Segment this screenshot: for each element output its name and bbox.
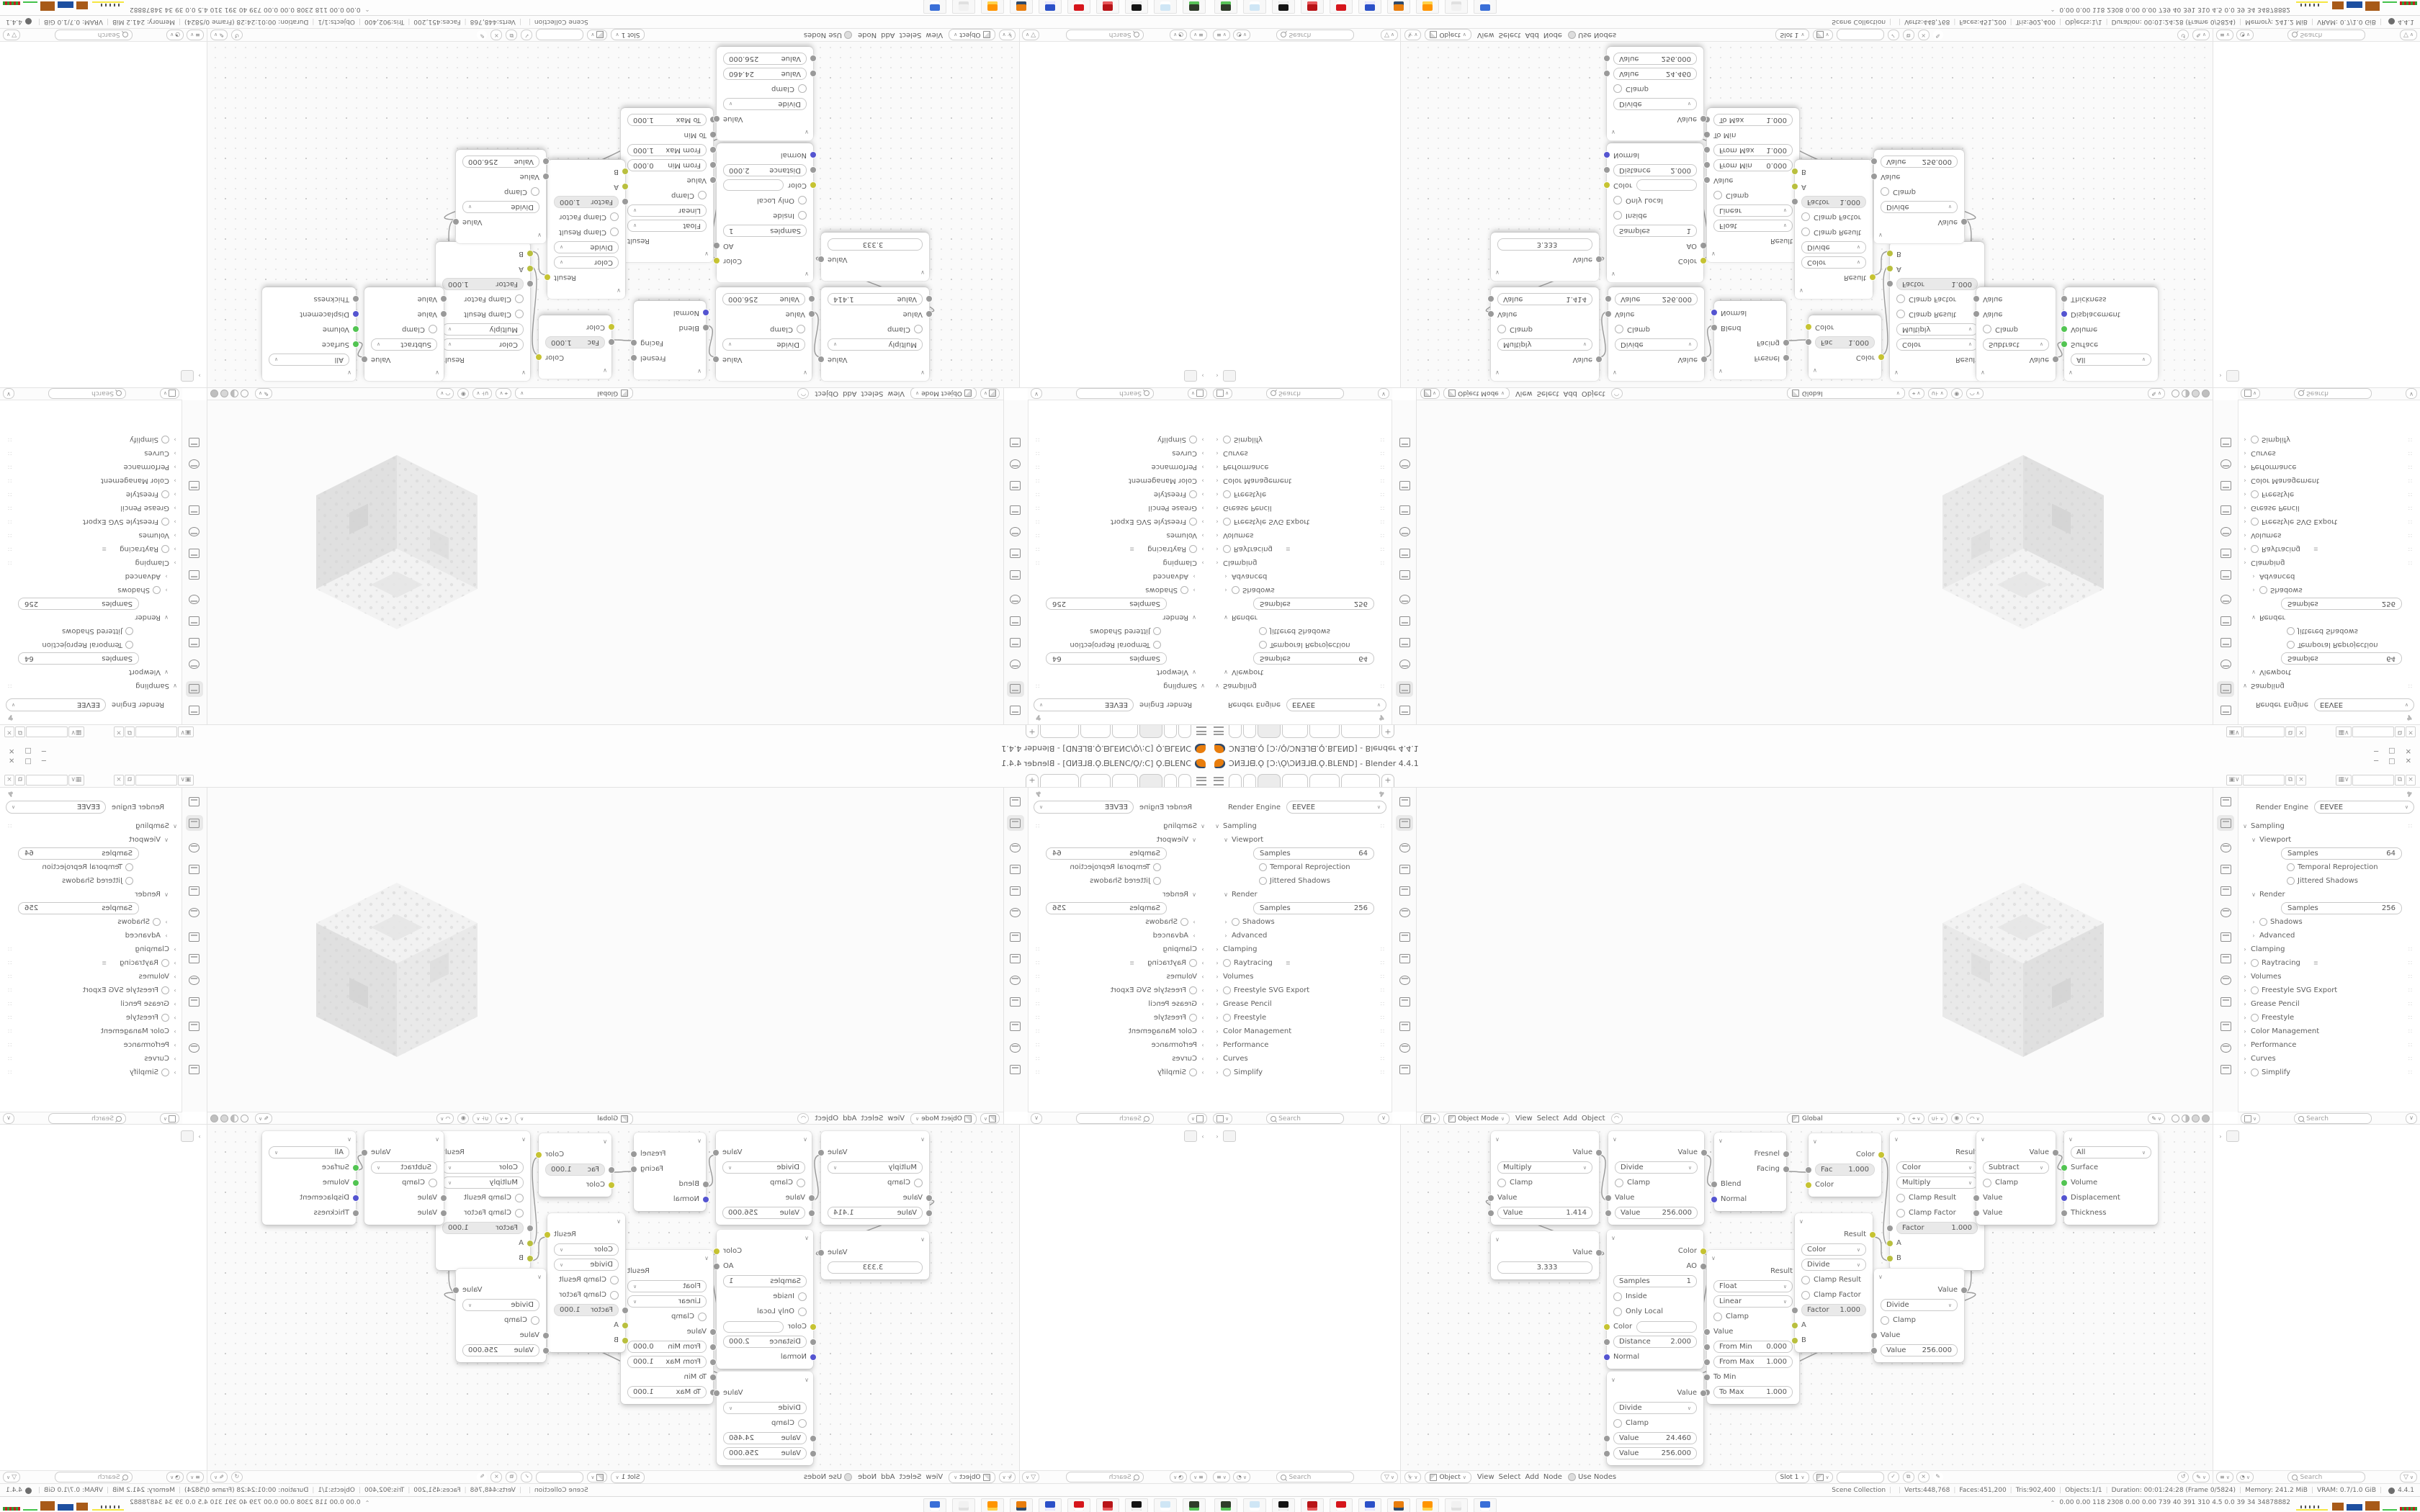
node-math-multiply[interactable]: ∨ValueMultiply∨ClampValueValue1.414 <box>821 287 929 381</box>
input-socket[interactable] <box>1604 71 1610 76</box>
property-row-clamping[interactable]: ›Clamping∷ <box>3 556 178 570</box>
node-map-range[interactable]: ∨ResultFloat∨Linear∨ClampValueFrom Min0.… <box>621 108 713 262</box>
value-field[interactable]: Samples64 <box>18 652 139 665</box>
gizmos-dropdown[interactable]: ✎∨ <box>2148 388 2165 399</box>
node-collapse-caret[interactable]: ∨ <box>821 267 929 279</box>
property-row-freestyle-svg-export[interactable]: ›Freestyle SVG Export∷ <box>3 515 178 528</box>
properties-tab-world-icon[interactable] <box>186 904 203 920</box>
output-socket[interactable] <box>713 1150 719 1156</box>
property-row-simplify[interactable]: ›Simplify∷ <box>1031 1066 1206 1079</box>
collapsed-item[interactable]: › <box>181 1130 202 1142</box>
transform-pivot-icon[interactable]: ◠ <box>1611 1113 1623 1124</box>
material-name-field[interactable] <box>536 1472 583 1483</box>
checkbox-icon[interactable] <box>1896 1194 1905 1202</box>
value-field[interactable]: Value24.460 <box>1613 1432 1697 1444</box>
properties-tab-strip[interactable] <box>1391 400 1417 724</box>
input-socket[interactable] <box>527 281 533 287</box>
input-socket[interactable] <box>810 1324 816 1330</box>
properties-tab-physics-icon[interactable] <box>186 994 203 1009</box>
value-field[interactable]: Value256.000 <box>462 156 539 168</box>
select-dropdown[interactable]: Multiply∨ <box>442 1176 524 1189</box>
input-socket[interactable] <box>810 152 816 158</box>
checkbox-icon[interactable] <box>798 1292 807 1301</box>
input-socket[interactable] <box>622 1338 628 1344</box>
property-row-performance[interactable]: ›Performance∷ <box>1214 1038 1389 1052</box>
select-dropdown[interactable]: Multiply∨ <box>828 1161 923 1174</box>
workspace-tab-4[interactable] <box>1309 724 1340 738</box>
node-collapse-caret[interactable]: ∨ <box>1795 1215 1873 1227</box>
properties-tab-particles-icon[interactable] <box>2217 972 2234 988</box>
property-row-advanced[interactable]: ›Advanced <box>3 929 169 942</box>
collapsed-item[interactable]: › <box>1214 370 1236 382</box>
select-dropdown[interactable]: All∨ <box>269 1146 349 1158</box>
checkbox-icon[interactable] <box>125 627 133 635</box>
node-value[interactable]: ∨Value3.333 <box>1491 1231 1599 1279</box>
taskbar-ghost-app-icon[interactable] <box>1445 1498 1468 1512</box>
value-field[interactable]: From Min0.000 <box>1713 1341 1793 1353</box>
close-icon[interactable]: × <box>114 775 124 786</box>
value-field[interactable]: Value256.000 <box>723 1447 807 1459</box>
options-dropdown[interactable]: ∨ <box>1378 388 1389 399</box>
properties-tab-strip[interactable] <box>1391 788 1417 1112</box>
properties-tab-particles-icon[interactable] <box>186 972 203 988</box>
value-field[interactable]: From Max1.000 <box>1713 1356 1793 1368</box>
input-socket[interactable] <box>1973 1195 1979 1201</box>
properties-tab-scene-icon[interactable] <box>1007 613 1024 629</box>
value-field[interactable]: Value24.460 <box>723 68 807 80</box>
node-math-divide-a[interactable]: ∨ValueDivide∨ClampValueValue256.000 <box>716 287 812 381</box>
collapsed-item[interactable]: › <box>2218 370 2239 382</box>
filter-dropdown[interactable]: ▽∨ <box>2400 1472 2417 1482</box>
property-row-freestyle-svg-export[interactable]: ›Freestyle SVG Export∷ <box>1031 515 1206 528</box>
property-row-grease-pencil[interactable]: ›Grease Pencil∷ <box>1031 501 1206 515</box>
properties-tab-object-icon[interactable] <box>186 567 203 583</box>
title-bar[interactable]: ƆИƎ⅃ᗺ.Ǫ [Ɔ:\Ǫ\ƆИƎ⅃ᗺ.Ǫ.BLEND] - Blender 4… <box>1210 740 2420 756</box>
workspace-tab-2[interactable] <box>1139 724 1162 738</box>
caption-buttons[interactable]: ─ □ ✕ <box>2374 757 2411 765</box>
duplicate-icon[interactable]: ⧉ <box>15 726 25 737</box>
material-name-field[interactable] <box>1837 1472 1884 1483</box>
property-row-samples[interactable]: Samples64 <box>3 652 139 665</box>
node-math-divide-a[interactable]: ∨ValueDivide∨ClampValueValue256.000 <box>716 1131 812 1225</box>
properties-tab-material-icon[interactable] <box>186 1061 203 1077</box>
input-socket[interactable] <box>1871 1333 1877 1338</box>
collapsed-item[interactable]: › <box>1184 370 1206 382</box>
wireframe-shading-icon[interactable] <box>2172 390 2179 397</box>
taskbar-notepad-app-icon[interactable] <box>1243 1498 1266 1512</box>
node-collapse-caret[interactable]: ∨ <box>1607 269 1703 280</box>
value-field[interactable]: Value256.000 <box>1613 53 1697 65</box>
property-row-advanced[interactable]: ›Advanced <box>1223 929 1389 942</box>
duplicate-icon[interactable]: ⧉ <box>2395 775 2405 786</box>
property-row-curves[interactable]: ›Curves∷ <box>1214 446 1389 460</box>
taskbar-hex-editor-app-icon[interactable] <box>1039 1498 1062 1512</box>
output-socket[interactable] <box>362 1150 367 1156</box>
node-map-range[interactable]: ∨ResultFloat∨Linear∨ClampValueFrom Min0.… <box>1707 108 1799 262</box>
properties-tab-data-icon[interactable] <box>2217 456 2234 472</box>
node-mix-color-divide[interactable]: ∨ResultColor∨Divide∨Clamp ResultClamp Fa… <box>1795 160 1873 299</box>
properties-tab-render-icon[interactable] <box>1396 681 1413 697</box>
property-row-freestyle[interactable]: ›Freestyle∷ <box>2242 487 2417 501</box>
node-collapse-caret[interactable]: ∨ <box>1491 1233 1599 1245</box>
gizmos-dropdown[interactable]: ✎∨ <box>255 388 272 399</box>
input-socket[interactable] <box>1604 1354 1610 1360</box>
output-socket[interactable] <box>1596 1250 1602 1256</box>
output-socket[interactable] <box>631 340 637 346</box>
taskbar-firefox-app-icon[interactable] <box>1416 1498 1439 1512</box>
property-row-curves[interactable]: ›Curves∷ <box>3 1052 178 1066</box>
node-canvas[interactable]: ∨ValueMultiply∨ClampValueValue1.414∨Valu… <box>207 1125 1019 1470</box>
taskbar-red-gear-app-icon[interactable] <box>1067 1498 1090 1512</box>
node-collapse-caret[interactable]: ∨ <box>1809 365 1881 377</box>
property-row-shadows[interactable]: ›Shadows <box>1223 583 1389 597</box>
checkbox-icon[interactable] <box>2287 877 2295 885</box>
output-socket[interactable] <box>631 1166 637 1172</box>
properties-tab-object-icon[interactable] <box>186 929 203 945</box>
select-dropdown[interactable]: Divide∨ <box>1615 338 1698 351</box>
filter-mode-dropdown[interactable]: ◔∨ <box>2236 30 2254 40</box>
properties-tab-physics-icon[interactable] <box>1396 503 1413 518</box>
output-socket[interactable] <box>1878 354 1884 360</box>
duplicate-icon[interactable]: ⧉ <box>125 726 135 737</box>
menu-select[interactable]: Select <box>1497 31 1523 39</box>
workspace-tab-0[interactable] <box>1178 774 1191 788</box>
maximize-icon[interactable]: □ <box>24 747 31 755</box>
viewlayer-name-field[interactable] <box>2352 775 2394 786</box>
property-row-performance[interactable]: ›Performance∷ <box>2242 1038 2417 1052</box>
node-collapse-caret[interactable]: ∨ <box>821 367 929 379</box>
properties-tab-physics-icon[interactable] <box>186 503 203 518</box>
search-input[interactable]: Search <box>1266 1113 1344 1124</box>
menu-view[interactable]: View <box>885 390 907 397</box>
menu-hamburger-icon[interactable] <box>1214 777 1224 786</box>
value-field[interactable]: Value1.414 <box>1497 293 1592 305</box>
node-collapse-caret[interactable]: ∨ <box>717 1374 813 1385</box>
properties-tab-world-icon[interactable] <box>186 592 203 608</box>
snap-target-dropdown[interactable]: ⌖∨ <box>1909 1113 1924 1124</box>
property-row-jittered-shadows[interactable]: Jittered Shadows <box>2287 874 2417 888</box>
display-mode-dropdown[interactable]: ≡∨ <box>2216 1472 2233 1482</box>
node-collapse-caret[interactable]: ∨ <box>1491 267 1599 279</box>
checkbox-icon[interactable] <box>1223 490 1231 498</box>
input-socket[interactable] <box>1806 324 1811 330</box>
input-socket[interactable] <box>703 310 709 315</box>
property-row-curves[interactable]: ›Curves∷ <box>2242 1052 2417 1066</box>
properties-tab-material-icon[interactable] <box>1396 1061 1413 1077</box>
menu-view[interactable]: View <box>1475 1473 1497 1481</box>
property-row-sampling[interactable]: ∨Sampling∷ <box>3 819 178 833</box>
taskbar-notepad-app-icon[interactable] <box>1243 0 1266 14</box>
output-socket[interactable] <box>1878 1152 1884 1158</box>
workspace-tab-3[interactable] <box>1112 774 1138 788</box>
value-field[interactable]: 3.333 <box>1497 238 1592 251</box>
properties-tab-tool-icon[interactable] <box>2217 793 2234 809</box>
property-row-viewport[interactable]: ∨Viewport <box>1031 833 1197 847</box>
input-socket[interactable] <box>609 1167 614 1173</box>
property-row-samples[interactable]: Samples256 <box>1031 901 1167 915</box>
checkbox-icon[interactable] <box>2287 627 2295 635</box>
render-engine-dropdown[interactable]: EEVEE∨ <box>6 801 106 814</box>
property-row-viewport[interactable]: ∨Viewport <box>1223 665 1389 679</box>
search-input[interactable]: Search <box>1276 1472 1354 1482</box>
properties-tab-strip[interactable] <box>181 400 207 724</box>
taskbar-icons[interactable] <box>1214 0 1497 14</box>
select-dropdown[interactable]: Divide∨ <box>722 338 805 351</box>
checkbox-icon[interactable] <box>153 918 161 926</box>
properties-tab-data-icon[interactable] <box>2217 1040 2234 1056</box>
taskbar-console-app-icon[interactable] <box>1214 1498 1237 1512</box>
snapping-toggle[interactable]: ↺ <box>2177 1472 2189 1482</box>
overlays-dropdown[interactable]: ✎∨ <box>210 30 228 40</box>
filter-dropdown[interactable]: ▽∨ <box>2400 30 2417 40</box>
workspace-tabs[interactable]: + <box>1026 774 1191 788</box>
property-row-sampling[interactable]: ∨Sampling∷ <box>1214 819 1389 833</box>
node-layer-weight[interactable]: ∨FresnelFacingBlendNormal <box>634 301 706 379</box>
search-input[interactable]: Search <box>1076 388 1154 399</box>
menu-hamburger-icon[interactable] <box>1214 726 1224 735</box>
input-socket[interactable] <box>1604 1451 1610 1457</box>
property-row-sampling[interactable]: ∨Sampling∷ <box>1031 679 1206 693</box>
filter-dropdown[interactable]: ▽∨ <box>3 1472 20 1482</box>
overlays-dropdown[interactable]: ◠∨ <box>1966 388 1984 399</box>
output-socket[interactable] <box>1700 1248 1706 1254</box>
properties-tab-output-icon[interactable] <box>2217 657 2234 672</box>
output-socket[interactable] <box>631 355 637 361</box>
value-field[interactable]: Value256.000 <box>1613 1447 1697 1459</box>
workspace-tab-3[interactable] <box>1282 724 1308 738</box>
select-dropdown[interactable]: Divide∨ <box>462 201 539 213</box>
checkbox-icon[interactable] <box>1180 586 1188 594</box>
checkbox-icon[interactable] <box>515 1194 524 1202</box>
select-dropdown[interactable]: Color∨ <box>442 1161 524 1174</box>
properties-tab-world-icon[interactable] <box>1007 904 1024 920</box>
property-row-volumes[interactable]: ›Volumes∷ <box>1214 970 1389 984</box>
node-collapse-caret[interactable]: ∨ <box>621 1252 713 1264</box>
maximize-icon[interactable]: □ <box>24 757 31 765</box>
checkbox-icon[interactable] <box>125 877 133 885</box>
snapping-toggle[interactable]: ↺ <box>231 1472 243 1482</box>
checkbox-icon[interactable] <box>1153 627 1161 635</box>
property-row-freestyle-svg-export[interactable]: ›Freestyle SVG Export∷ <box>1214 515 1389 528</box>
select-dropdown[interactable]: Divide∨ <box>723 1402 807 1414</box>
node-mix-color-multiply[interactable]: ∨ResultColor∨Multiply∨Clamp ResultClamp … <box>436 1131 530 1270</box>
node-math-subtract[interactable]: ∨ValueSubtract∨ClampValueValue <box>364 1131 444 1225</box>
input-socket[interactable] <box>543 1348 549 1354</box>
workspace-tab-2[interactable] <box>1258 724 1281 738</box>
viewport-canvas[interactable] <box>207 400 1003 724</box>
properties-tab-modifier-icon[interactable] <box>1007 950 1024 966</box>
use-nodes-checkbox[interactable]: Use Nodes <box>804 31 852 39</box>
select-dropdown[interactable]: Multiply∨ <box>1896 323 1978 336</box>
property-row-shadows[interactable]: ›Shadows <box>1223 915 1389 929</box>
value-field[interactable]: Samples256 <box>1253 902 1374 914</box>
value-field[interactable]: Samples64 <box>2281 847 2402 860</box>
input-socket[interactable] <box>527 266 533 271</box>
material-name-field[interactable] <box>1837 30 1884 41</box>
snap-target-dropdown[interactable]: ⌖∨ <box>1909 388 1924 399</box>
pin-icon[interactable] <box>1379 792 1385 798</box>
orientation-dropdown[interactable]: Global∨ <box>1787 1113 1905 1125</box>
node-collapse-caret[interactable]: ∨ <box>262 367 356 379</box>
properties-tab-constraints-icon[interactable] <box>186 1018 203 1034</box>
input-socket[interactable] <box>1704 162 1710 168</box>
checkbox-icon[interactable] <box>153 586 161 594</box>
editor-type-button[interactable]: ∨ <box>2241 388 2260 399</box>
property-row-freestyle-svg-export[interactable]: ›Freestyle SVG Export∷ <box>1031 984 1206 997</box>
checkbox-icon[interactable] <box>1223 518 1231 526</box>
input-socket[interactable] <box>810 1451 816 1457</box>
filter-mode-dropdown[interactable]: ◔∨ <box>1233 1472 1250 1482</box>
viewlayer-icon[interactable]: ▦∨ <box>68 726 84 737</box>
material-slot-dropdown[interactable]: Slot 1∨ <box>611 1472 645 1483</box>
input-socket[interactable] <box>809 1195 815 1201</box>
value-field[interactable]: Distance2.000 <box>723 1336 807 1348</box>
snap-target-dropdown[interactable]: ⌖∨ <box>496 1113 511 1124</box>
input-socket[interactable] <box>543 174 549 179</box>
input-socket[interactable] <box>1792 1308 1798 1313</box>
property-row-performance[interactable]: ›Performance∷ <box>3 460 178 474</box>
output-socket[interactable] <box>1961 1287 1967 1293</box>
unlink-material-button[interactable]: × <box>490 30 502 40</box>
properties-tab-strip[interactable] <box>181 788 207 1112</box>
properties-tab-physics-icon[interactable] <box>2217 503 2234 518</box>
checkbox-icon[interactable] <box>797 1179 805 1187</box>
checkbox-icon[interactable] <box>1615 1179 1623 1187</box>
editor-type-button[interactable]: ∨ <box>1188 1113 1207 1124</box>
property-row-temporal-reprojection[interactable]: Temporal Reprojection <box>1259 638 1389 652</box>
use-nodes-checkbox[interactable]: Use Nodes <box>1568 31 1616 39</box>
taskbar-remote-desktop-app-icon[interactable] <box>1474 1498 1497 1512</box>
shading-mode-buttons[interactable] <box>2172 1115 2210 1122</box>
input-socket[interactable] <box>1806 1182 1811 1188</box>
properties-tab-material-icon[interactable] <box>2217 1061 2234 1077</box>
input-socket[interactable] <box>2061 296 2067 302</box>
properties-tab-modifier-icon[interactable] <box>186 546 203 562</box>
output-socket[interactable] <box>2053 356 2058 362</box>
properties-tab-data-icon[interactable] <box>1396 1040 1413 1056</box>
workspace-tab-0[interactable] <box>1178 724 1191 738</box>
close-icon[interactable]: × <box>4 775 14 786</box>
menger-cube-object[interactable] <box>1930 874 2117 1090</box>
output-socket[interactable] <box>1700 258 1706 264</box>
input-socket[interactable] <box>353 296 359 302</box>
properties-tab-output-icon[interactable] <box>186 840 203 855</box>
node-collapse-caret[interactable]: ∨ <box>634 366 706 377</box>
properties-tab-scene-icon[interactable] <box>2217 613 2234 629</box>
color-swatch[interactable] <box>723 180 784 192</box>
search-input[interactable]: Search <box>1076 1113 1154 1124</box>
checkbox-icon[interactable] <box>1983 1179 1991 1187</box>
scene-selector[interactable]: ▣∨ ⧉ × <box>2226 726 2306 737</box>
properties-tab-modifier-icon[interactable] <box>1396 950 1413 966</box>
value-field[interactable]: 3.333 <box>828 238 923 251</box>
input-socket[interactable] <box>1488 311 1494 317</box>
input-socket[interactable] <box>703 1197 709 1202</box>
menu-view[interactable]: View <box>1513 390 1535 397</box>
node-collapse-caret[interactable]: ∨ <box>1976 367 2056 379</box>
editor-type-button[interactable]: ∨ <box>1420 388 1440 399</box>
property-row-shadows[interactable]: ›Shadows <box>3 915 169 929</box>
title-bar[interactable]: ƆИƎ⅃ᗺ.Ǫ [Ɔ:\Ǫ\ƆИƎ⅃ᗺ.Ǫ.BLEND] - Blender 4… <box>0 756 1210 772</box>
properties-tab-render-icon[interactable] <box>186 681 203 697</box>
pin-icon[interactable] <box>1379 714 1385 720</box>
property-row-sampling[interactable]: ∨Sampling∷ <box>2242 679 2417 693</box>
filter-mode-dropdown[interactable]: ◔∨ <box>1170 30 1187 40</box>
checkbox-icon[interactable] <box>1801 228 1810 237</box>
checkbox-icon[interactable] <box>1189 490 1197 498</box>
taskbar-red-circle-app-icon[interactable] <box>1096 1498 1119 1512</box>
value-field[interactable]: Value256.000 <box>722 1207 805 1219</box>
menu-node[interactable]: Node <box>1541 1473 1564 1481</box>
property-row-raytracing[interactable]: ›Raytracing≣∷ <box>3 542 178 556</box>
menu-hamburger-icon[interactable] <box>1196 777 1206 786</box>
properties-tab-world-icon[interactable] <box>2217 592 2234 608</box>
output-socket[interactable] <box>544 274 550 280</box>
input-socket[interactable] <box>441 311 447 317</box>
property-row-performance[interactable]: ›Performance∷ <box>1031 460 1206 474</box>
viewlayer-name-field[interactable] <box>26 775 68 786</box>
display-mode-dropdown[interactable]: ≡∨ <box>1190 1472 1207 1482</box>
rendered-shading-icon[interactable] <box>210 1115 218 1122</box>
filter-dropdown[interactable]: ▽∨ <box>1381 1472 1398 1482</box>
property-row-clamping[interactable]: ›Clamping∷ <box>2242 556 2417 570</box>
property-row-samples[interactable]: Samples256 <box>2281 597 2417 611</box>
select-dropdown[interactable]: Color∨ <box>554 256 619 269</box>
output-socket[interactable] <box>1783 355 1789 361</box>
input-socket[interactable] <box>1704 1359 1710 1365</box>
property-row-grease-pencil[interactable]: ›Grease Pencil∷ <box>1031 997 1206 1011</box>
options-dropdown[interactable]: ∨ <box>2406 388 2417 399</box>
proportional-edit-toggle[interactable]: ◉ <box>457 388 469 399</box>
checkbox-icon[interactable] <box>515 295 524 304</box>
output-socket[interactable] <box>714 1264 720 1269</box>
input-socket[interactable] <box>1792 1338 1798 1344</box>
checkbox-icon[interactable] <box>1153 877 1161 885</box>
checkbox-icon[interactable] <box>914 1179 923 1187</box>
node-invert-color[interactable]: ∨ColorFac1.000Color <box>539 315 611 379</box>
editor-type-button[interactable]: ∨ <box>1213 1113 1232 1124</box>
minimize-icon[interactable]: ─ <box>2374 757 2378 765</box>
input-socket[interactable] <box>1704 1374 1710 1380</box>
collapsed-item[interactable]: › <box>1184 1130 1206 1142</box>
input-socket[interactable] <box>1792 184 1798 189</box>
output-socket[interactable] <box>1961 219 1967 225</box>
wireframe-shading-icon[interactable] <box>241 1115 248 1122</box>
add-workspace-button[interactable]: + <box>1381 724 1394 738</box>
taskbar-ghost-app-icon[interactable] <box>952 0 975 14</box>
property-row-advanced[interactable]: ›Advanced <box>1031 929 1197 942</box>
value-field[interactable]: Samples256 <box>1046 902 1167 914</box>
tray-expand-icon[interactable]: ⌃ <box>2051 1500 2056 1506</box>
checkbox-icon[interactable] <box>125 641 133 649</box>
output-socket[interactable] <box>818 1150 824 1156</box>
property-row-render[interactable]: ∨Render <box>1031 611 1197 624</box>
properties-tab-object-icon[interactable] <box>1007 567 1024 583</box>
select-dropdown[interactable]: Divide∨ <box>723 98 807 110</box>
pin-icon[interactable] <box>2406 792 2413 798</box>
pin-icon[interactable] <box>7 792 14 798</box>
property-row-freestyle[interactable]: ›Freestyle∷ <box>1031 1011 1206 1025</box>
property-row-simplify[interactable]: ›Simplify∷ <box>2242 1066 2417 1079</box>
output-socket[interactable] <box>1596 1150 1602 1156</box>
properties-tab-output-icon[interactable] <box>2217 840 2234 855</box>
output-socket[interactable] <box>544 1232 550 1238</box>
taskbar-ghost-app-icon[interactable] <box>1445 0 1468 14</box>
close-icon[interactable]: × <box>2406 775 2416 786</box>
input-socket[interactable] <box>926 1210 932 1216</box>
property-row-curves[interactable]: ›Curves∷ <box>1031 446 1206 460</box>
node-math-divide-c[interactable]: ∨ValueDivide∨ClampValue24.460Value256.00… <box>1607 47 1703 140</box>
